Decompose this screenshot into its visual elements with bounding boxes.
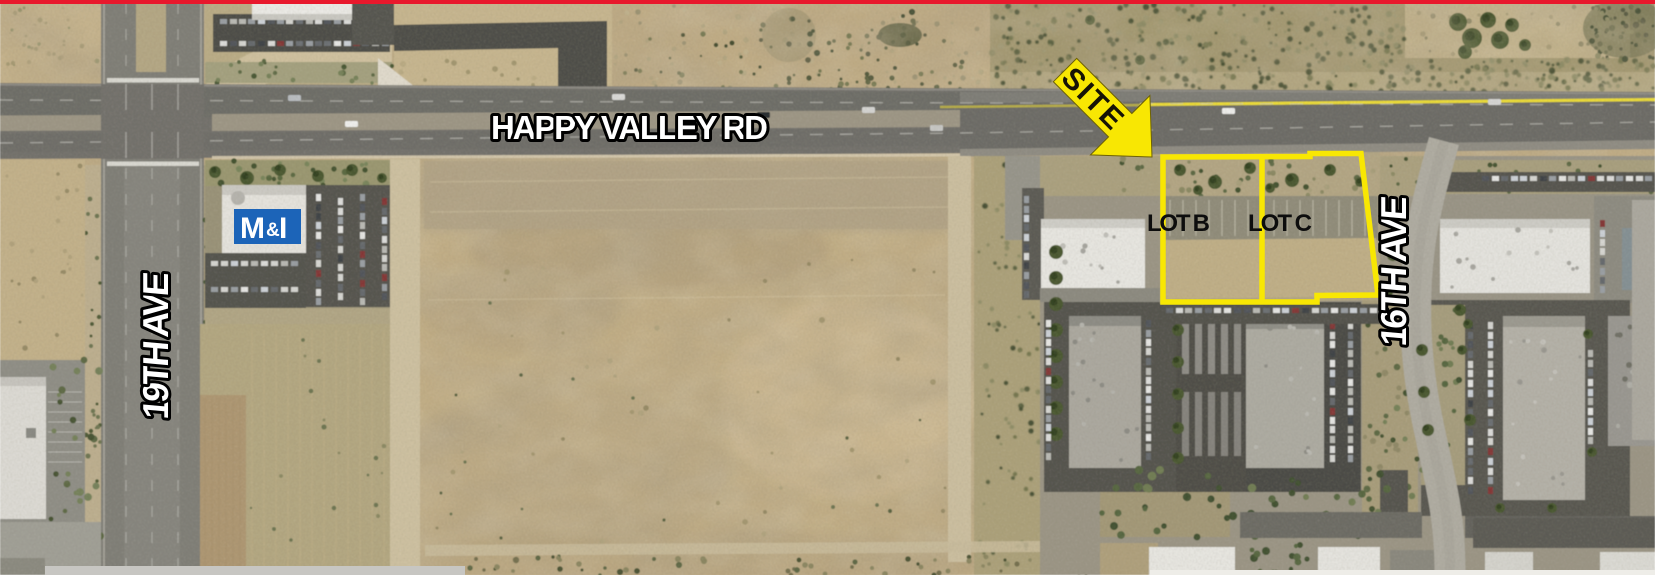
- svg-text:I: I: [279, 212, 287, 245]
- svg-text:&: &: [266, 220, 280, 241]
- svg-text:19TH AVE: 19TH AVE: [135, 270, 176, 421]
- svg-text:16TH AVE: 16TH AVE: [1373, 194, 1414, 348]
- svg-text:LOT B: LOT B: [1147, 210, 1210, 237]
- svg-text:LOT C: LOT C: [1248, 210, 1312, 237]
- svg-text:M: M: [240, 212, 265, 245]
- svg-text:HAPPY VALLEY RD: HAPPY VALLEY RD: [491, 109, 768, 146]
